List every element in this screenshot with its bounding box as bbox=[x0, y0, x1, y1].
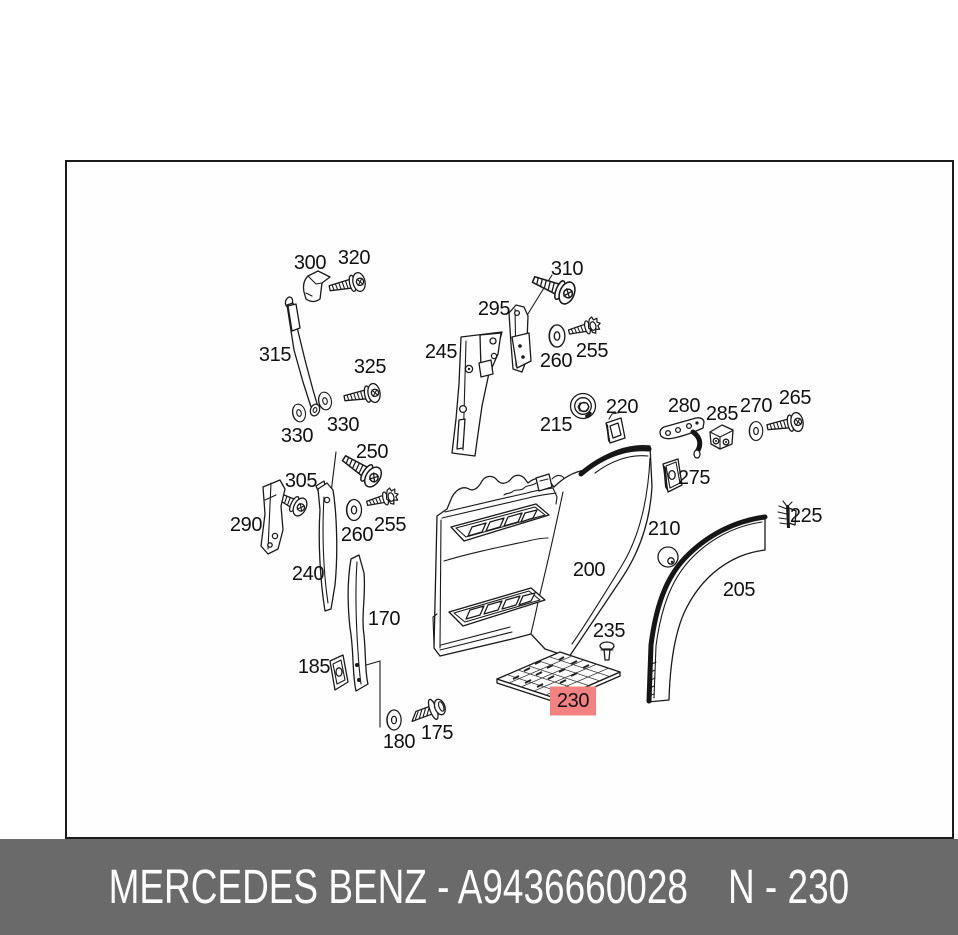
part-label-260: 260 bbox=[341, 524, 373, 546]
part-285-bracket bbox=[710, 425, 733, 449]
part-label-215: 215 bbox=[540, 414, 572, 436]
part-label-315: 315 bbox=[259, 344, 291, 366]
part-210-grommet bbox=[658, 547, 678, 567]
part-label-310: 310 bbox=[551, 258, 583, 280]
part-label-270: 270 bbox=[740, 395, 772, 417]
part-245-bracket bbox=[452, 332, 502, 456]
part-215-grommet bbox=[571, 394, 596, 419]
part-label-280: 280 bbox=[668, 395, 700, 417]
part-300-bracket bbox=[304, 271, 331, 302]
part-235-screw bbox=[600, 642, 614, 660]
part-label-250: 250 bbox=[356, 441, 388, 463]
part-label-180: 180 bbox=[383, 731, 415, 753]
part-label-240: 240 bbox=[292, 563, 324, 585]
part-185-bracket bbox=[330, 655, 348, 690]
part-label-330: 330 bbox=[327, 414, 359, 436]
part-label-300: 300 bbox=[294, 252, 326, 274]
part-label-170: 170 bbox=[368, 608, 400, 630]
part-label-175: 175 bbox=[421, 722, 453, 744]
part-330-washer-left bbox=[291, 403, 307, 423]
part-label-205: 205 bbox=[723, 579, 755, 601]
part-255-bolt-top bbox=[567, 315, 602, 339]
footer-brand-and-part-number: MERCEDES BENZ - A9436660028 bbox=[109, 860, 688, 915]
part-label-200: 200 bbox=[573, 559, 605, 581]
part-label-260: 260 bbox=[540, 350, 572, 372]
part-325-bolt bbox=[343, 383, 382, 408]
parts-diagram-page: 3003203102952452602553153253303302503052… bbox=[0, 0, 958, 935]
part-240-bracket bbox=[316, 481, 337, 611]
part-205-fender-flare bbox=[648, 516, 765, 702]
part-label-285: 285 bbox=[706, 403, 738, 425]
part-label-210: 210 bbox=[648, 518, 680, 540]
footer-text: MERCEDES BENZ - A9436660028 N - 230 bbox=[109, 860, 850, 915]
part-label-235: 235 bbox=[593, 620, 625, 642]
part-label-230: 230 bbox=[557, 690, 589, 712]
part-320-bolt bbox=[328, 271, 367, 297]
parts-diagram-image: 3003203102952452602553153253303302503052… bbox=[67, 162, 952, 837]
footer-bar: MERCEDES BENZ - A9436660028 N - 230 bbox=[0, 839, 958, 935]
part-label-220: 220 bbox=[606, 396, 638, 418]
part-255-bolt-mid bbox=[365, 486, 401, 510]
part-260-washer-mid bbox=[347, 500, 362, 521]
part-label-320: 320 bbox=[338, 247, 370, 269]
part-label-255: 255 bbox=[576, 340, 608, 362]
part-260-washer-top bbox=[549, 325, 565, 347]
part-label-255: 255 bbox=[374, 514, 406, 536]
part-170-bracket bbox=[348, 555, 368, 691]
part-label-245: 245 bbox=[425, 341, 457, 363]
part-label-325: 325 bbox=[354, 356, 386, 378]
part-280-bracket bbox=[660, 418, 704, 458]
part-label-185: 185 bbox=[298, 656, 330, 678]
part-180-washer bbox=[387, 710, 401, 730]
part-label-225: 225 bbox=[790, 505, 822, 527]
part-label-290: 290 bbox=[230, 514, 262, 536]
diagram-frame: 3003203102952452602553153253303302503052… bbox=[65, 160, 954, 839]
part-label-275: 275 bbox=[678, 467, 710, 489]
part-270-washer bbox=[749, 422, 763, 441]
part-290-bracket bbox=[261, 480, 285, 554]
part-label-265: 265 bbox=[779, 387, 811, 409]
part-label-305: 305 bbox=[285, 470, 317, 492]
part-label-295: 295 bbox=[478, 298, 510, 320]
part-label-330: 330 bbox=[281, 425, 313, 447]
footer-catalog-ref: N - 230 bbox=[728, 860, 849, 915]
part-295-bracket bbox=[509, 305, 531, 372]
